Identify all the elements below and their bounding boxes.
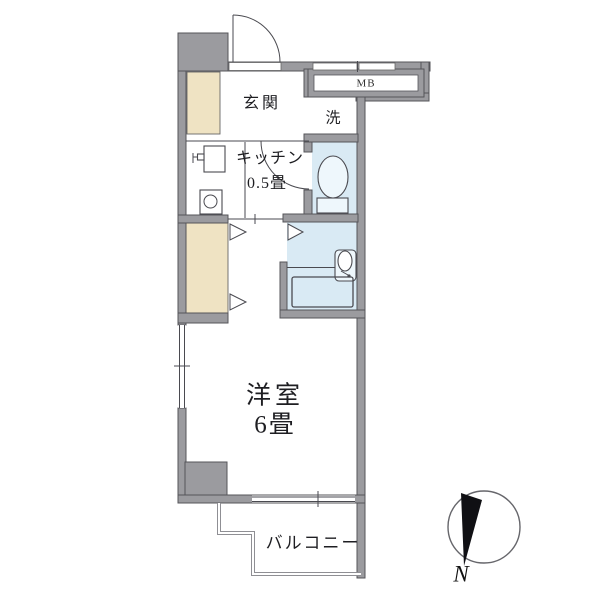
floor-plan: 玄関 MB 洗 キッチン 0.5畳 洋室 6畳 バルコニー N [0,0,600,600]
shoe-cabinet [187,72,220,134]
pillar-top-left [178,33,228,71]
stove-icon [200,190,222,214]
main-room-label: 洋室 [246,384,304,409]
closet-door-arrow-bottom [230,294,246,310]
compass-needle-icon [461,493,482,566]
top-window-left [313,63,357,70]
kitchen-sink-icon [204,146,225,172]
compass-circle [448,491,520,563]
entrance-door-arc [233,15,280,62]
wall-toilet-door-stub-top [304,142,312,152]
kitchen-faucet-icon [198,154,205,160]
top-window-right [359,63,395,70]
kitchen-label: キッチン [236,151,304,167]
wall-bathroom-top [283,214,358,222]
washer-label: 洗 [325,112,340,127]
wall-closet-top [178,215,228,223]
compass [448,491,520,566]
main-room-size: 6畳 [254,413,296,438]
compass-north-label: N [453,563,468,586]
wall-left-upper [178,33,186,325]
wall-washer-toilet-divider [304,134,358,142]
entrance-label: 玄関 [243,96,281,112]
entrance-door-opening [229,63,281,71]
wall-closet-bottom [178,313,228,323]
closet [186,223,228,313]
washbasin-icon [338,251,352,271]
wall-right [357,93,365,578]
toilet-bowl-icon [318,156,348,198]
wall-bathroom-bottom [280,310,365,318]
meter-box-label: MB [356,79,375,90]
toilet-fixtures [317,156,348,213]
kitchen-size: 0.5畳 [247,176,287,192]
balcony-label: バルコニー [266,535,361,552]
floor-plan-drawing [0,0,600,600]
closet-door-arrow-top [230,224,246,240]
toilet-tank-icon [317,198,348,213]
